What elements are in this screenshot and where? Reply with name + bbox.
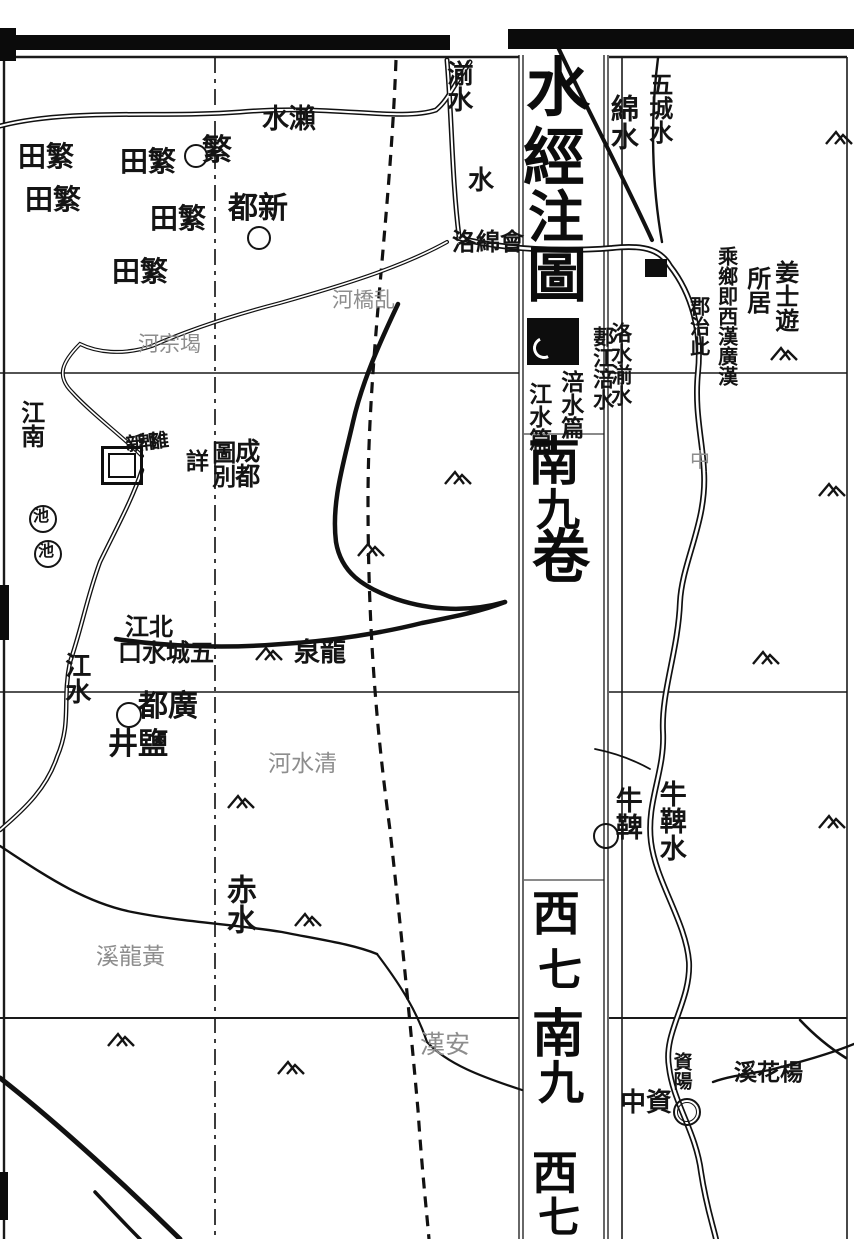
county-label-zizhong: 中資 bbox=[620, 1090, 672, 1117]
confluence-label: 洛綿會 bbox=[452, 230, 524, 255]
mountain-symbol-icon bbox=[817, 810, 849, 836]
scan-artifact-bar bbox=[0, 1172, 8, 1220]
route-dashed-line bbox=[368, 60, 429, 1239]
river-label-wucheng-mouth: 口水城五 bbox=[118, 641, 214, 666]
river-label-shui: 水 bbox=[468, 168, 494, 195]
mountain-symbol-icon bbox=[276, 1056, 308, 1082]
note-chengdu-map-2: 圖別 bbox=[209, 440, 234, 488]
mountain-symbol-icon bbox=[443, 466, 475, 492]
note-jiangshiyou: 姜士遊 bbox=[772, 260, 797, 332]
fold-ink-cartouche bbox=[527, 318, 579, 365]
mountain-symbol-icon bbox=[769, 342, 801, 368]
scan-artifact-bar bbox=[508, 29, 854, 49]
mountain-symbol-icon bbox=[293, 908, 325, 934]
fold-title-char: 圖 bbox=[527, 246, 585, 308]
mountain-symbol-icon bbox=[106, 1028, 138, 1054]
note-jiangshiyou-2: 所居 bbox=[744, 266, 769, 314]
fold-index-char: 西 bbox=[532, 890, 578, 939]
city-label-chengdu: 成都 bbox=[233, 438, 259, 488]
river-label-qi-fu: 郪江涪水 bbox=[592, 326, 614, 410]
fold-index-char: 卷 bbox=[532, 528, 588, 588]
city-wall-marker bbox=[101, 446, 143, 485]
weir-label: 河宗堨 bbox=[138, 334, 201, 356]
bridge-label: 河橋乱 bbox=[332, 290, 395, 312]
river-label-niubingshui: 牛鞞水 bbox=[656, 780, 684, 861]
river-label-jiangshui: 江水 bbox=[62, 652, 89, 704]
mountain-symbol-icon bbox=[751, 646, 783, 672]
fantian-label: 田繁 bbox=[150, 205, 206, 234]
fantian-label: 田繁 bbox=[120, 148, 176, 177]
mountain-symbol-icon bbox=[254, 642, 286, 668]
county-seat-marker bbox=[593, 823, 619, 849]
note-guanghan-seat-2: 郡治此 bbox=[688, 296, 709, 356]
river-label-chishui: 赤水 bbox=[222, 874, 253, 934]
mountain-symbol-icon bbox=[817, 478, 849, 504]
river-label-jianshui: 湔水 bbox=[444, 60, 471, 112]
fantian-label: 田繁 bbox=[18, 143, 74, 172]
county-seat-marker bbox=[29, 505, 57, 533]
stream-label-yanghuaxi: 溪花楊 bbox=[734, 1061, 803, 1085]
stream-label-huanglongxi: 溪龍黃 bbox=[96, 946, 165, 970]
fold-index-char: 七 bbox=[538, 1196, 578, 1239]
county-seat-marker bbox=[184, 144, 208, 168]
river-label-northbranch: 江北 bbox=[125, 615, 173, 640]
county-seat-marker bbox=[34, 540, 62, 568]
fold-index-char: 西 bbox=[532, 1150, 576, 1197]
fold-index-char: 南 bbox=[528, 436, 578, 490]
scan-artifact-bar bbox=[0, 585, 9, 640]
river-label-qingshui: 河水清 bbox=[268, 753, 337, 777]
river-label-laishui: 水瀨 bbox=[262, 106, 316, 134]
river-label-southbranch: 江南 bbox=[18, 400, 43, 448]
county-label-guangdu: 都廣 bbox=[138, 692, 198, 723]
place-label-longquan: 泉龍 bbox=[294, 640, 346, 667]
fold-index-char: 七 bbox=[538, 948, 580, 993]
map-sheet: 水瀨繁田繁田繁田繁田繁田繁都新湔水水綿水五城水河橋乱河宗堨洛綿會洛水湔水郪江涪水… bbox=[0, 0, 854, 1239]
scan-artifact-bar bbox=[15, 35, 450, 50]
fold-index-char: 南 bbox=[532, 1008, 582, 1062]
city-label-ziyang: 資陽 bbox=[671, 1052, 691, 1090]
note-guanghan-seat: 乘鄉即西漢廣漢 bbox=[716, 246, 737, 386]
settlement-marker bbox=[645, 259, 667, 277]
mountain-symbol-icon bbox=[356, 538, 388, 564]
fold-chapter-fushui: 涪水篇 bbox=[558, 370, 582, 439]
fantian-label: 田繁 bbox=[25, 186, 81, 215]
fold-index-char: 九 bbox=[538, 1060, 582, 1107]
label-salt-wells: 井鹽 bbox=[108, 730, 168, 761]
river-label-mianshui: 綿水 bbox=[608, 94, 637, 150]
county-seat-marker bbox=[673, 1098, 701, 1126]
fold-title-char: 水 bbox=[526, 56, 588, 122]
fold-title-char: 注 bbox=[528, 190, 582, 248]
mountain-symbol-icon bbox=[824, 126, 854, 152]
county-seat-marker bbox=[116, 702, 142, 728]
faint-label-hanan: 漢安 bbox=[420, 1032, 470, 1058]
scan-artifact-bar bbox=[0, 28, 16, 61]
fantian-label: 田繁 bbox=[112, 258, 168, 287]
note-chengdu-map: 詳 bbox=[186, 450, 209, 474]
mountain-symbol-icon bbox=[226, 790, 258, 816]
river-label-wuchengshui: 五城水 bbox=[646, 72, 671, 144]
county-label-xindu: 都新 bbox=[228, 194, 288, 225]
county-seat-marker bbox=[247, 226, 271, 250]
fold-title-char: 經 bbox=[523, 126, 583, 190]
faint-label-zhong: 中 bbox=[690, 450, 710, 471]
cartouche-mark bbox=[530, 334, 558, 362]
